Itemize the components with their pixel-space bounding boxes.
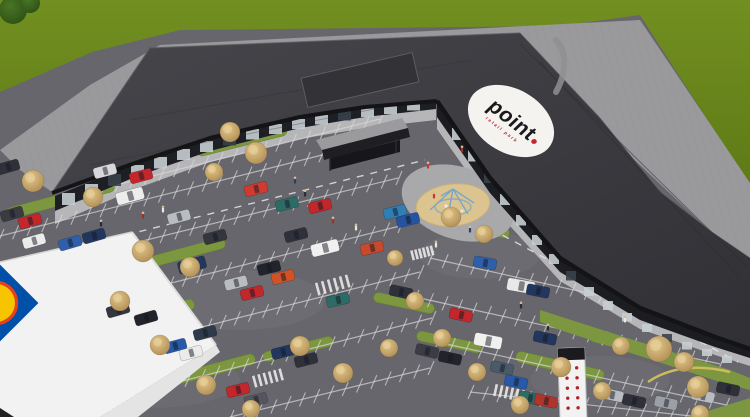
person-body	[294, 179, 296, 184]
storefront-glass-panel	[566, 271, 576, 281]
person-head	[469, 226, 472, 229]
tree-highlight	[135, 243, 145, 253]
autumn-tree	[220, 122, 240, 142]
tree-highlight	[615, 339, 623, 347]
tree-highlight	[650, 339, 662, 351]
person-head	[100, 220, 103, 223]
person	[433, 192, 436, 199]
storefront-glass-panel	[62, 193, 75, 205]
person	[461, 146, 464, 153]
scene-svg: point retail park	[0, 0, 750, 417]
tree-highlight	[208, 165, 216, 173]
person-body	[520, 304, 522, 309]
autumn-tree	[196, 375, 216, 395]
person	[547, 324, 550, 331]
person-body	[355, 226, 357, 231]
tree-highlight	[389, 252, 396, 259]
person	[624, 316, 627, 323]
person-head	[427, 162, 430, 165]
storefront-glass-panel	[622, 313, 632, 322]
person-head	[461, 146, 464, 149]
person-head	[304, 190, 307, 193]
person-body	[624, 318, 626, 323]
autumn-tree	[612, 337, 630, 355]
person-body	[332, 219, 334, 224]
person	[469, 226, 472, 233]
person-head	[435, 241, 438, 244]
person-head	[520, 302, 523, 305]
person	[332, 217, 335, 224]
storefront-glass-panel	[108, 174, 121, 186]
autumn-tree	[290, 336, 310, 356]
tree-highlight	[694, 407, 702, 415]
autumn-tree	[406, 292, 424, 310]
tree-highlight	[183, 260, 192, 269]
person-body	[162, 208, 164, 213]
storefront-glass-panel	[722, 356, 732, 363]
person-head	[433, 192, 436, 195]
tree-highlight	[444, 210, 453, 219]
tree-highlight	[514, 398, 522, 406]
person	[162, 206, 165, 213]
person-body	[461, 148, 463, 153]
storefront-glass-panel	[702, 349, 712, 356]
autumn-tree	[242, 400, 260, 417]
person-body	[547, 326, 549, 331]
autumn-tree	[687, 376, 709, 398]
person	[100, 220, 103, 227]
storefront-glass-panel	[603, 301, 613, 310]
person-body	[469, 228, 471, 233]
storefront-glass-panel	[682, 342, 692, 350]
tree-highlight	[677, 355, 686, 364]
person-body	[435, 243, 437, 248]
tree-highlight	[25, 173, 35, 183]
autumn-tree	[380, 339, 398, 357]
person-body	[304, 192, 306, 197]
autumn-tree	[433, 329, 451, 347]
autumn-tree	[551, 357, 571, 377]
autumn-tree	[646, 336, 672, 362]
autumn-tree	[22, 170, 44, 192]
play-equipment	[444, 204, 447, 207]
person	[294, 177, 297, 184]
autumn-tree	[150, 335, 170, 355]
person-body	[433, 194, 435, 199]
person-head	[332, 217, 335, 220]
autumn-tree	[475, 225, 493, 243]
tree-highlight	[153, 338, 162, 347]
person-head	[294, 177, 297, 180]
tree-highlight	[199, 378, 208, 387]
person	[142, 212, 145, 219]
autumn-tree	[132, 240, 154, 262]
autumn-tree	[387, 250, 403, 266]
tree-highlight	[336, 366, 345, 375]
person-head	[355, 224, 358, 227]
person	[435, 241, 438, 248]
tree-highlight	[86, 190, 95, 199]
person-head	[624, 316, 627, 319]
person	[520, 302, 523, 309]
person-head	[142, 212, 145, 215]
tree-highlight	[409, 294, 417, 302]
tree-highlight	[596, 384, 604, 392]
tree-highlight	[248, 145, 258, 155]
tree-highlight	[223, 125, 232, 134]
tree-highlight	[690, 379, 700, 389]
autumn-tree	[593, 382, 611, 400]
person	[427, 162, 430, 169]
autumn-tree	[205, 163, 223, 181]
autumn-tree	[441, 207, 461, 227]
autumn-tree	[180, 257, 200, 277]
tree-highlight	[293, 339, 302, 348]
tree-highlight	[436, 331, 444, 339]
autumn-tree	[245, 142, 267, 164]
person	[355, 224, 358, 231]
autumn-tree	[333, 363, 353, 383]
retail-park-render: point retail park	[0, 0, 750, 417]
tree-highlight	[554, 360, 563, 369]
autumn-tree	[83, 187, 103, 207]
storefront-glass-panel	[584, 287, 594, 296]
autumn-tree	[674, 352, 694, 372]
autumn-tree	[110, 291, 130, 311]
storefront-glass-panel	[177, 149, 190, 160]
person-body	[427, 164, 429, 169]
autumn-tree	[511, 396, 529, 414]
storefront-glass-panel	[642, 324, 652, 332]
person-body	[100, 222, 102, 227]
person-head	[162, 206, 165, 209]
storefront-glass-panel	[154, 157, 167, 169]
tree-highlight	[471, 365, 479, 373]
person-body	[142, 214, 144, 219]
tree-highlight	[383, 341, 391, 349]
tree-highlight	[245, 402, 253, 410]
tree-highlight	[113, 294, 122, 303]
autumn-tree	[468, 363, 486, 381]
play-equipment	[460, 209, 463, 212]
person-head	[547, 324, 550, 327]
person	[304, 190, 307, 197]
tree-highlight	[478, 227, 486, 235]
